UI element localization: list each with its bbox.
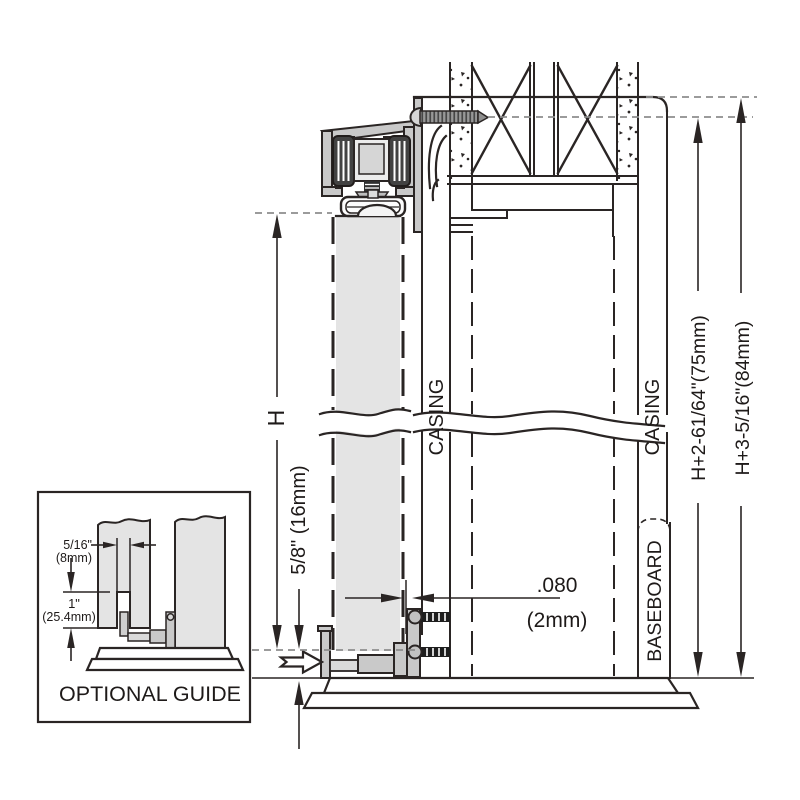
floor-plate-lower bbox=[304, 693, 698, 708]
guide-rod bbox=[330, 660, 358, 671]
plaster-stipple-right bbox=[618, 63, 637, 179]
dim-door-height: H bbox=[263, 214, 289, 649]
guide-adjuster-block bbox=[358, 655, 394, 673]
door-section-diagram: H 5/8" (16mm) H+2-61/64"(75mm) H+3-5/16"… bbox=[0, 0, 800, 800]
guide-screw-upper bbox=[409, 611, 451, 624]
overall-height-label: H+3-5/16"(84mm) bbox=[732, 321, 754, 476]
inset-title: OPTIONAL GUIDE bbox=[59, 682, 241, 706]
door-height-label: H bbox=[263, 410, 289, 427]
inset-floor-plate-upper bbox=[96, 648, 233, 659]
technical-drawing: H 5/8" (16mm) H+2-61/64"(75mm) H+3-5/16"… bbox=[0, 0, 800, 800]
track-left-wall bbox=[322, 131, 332, 193]
floor-plate-upper bbox=[324, 678, 678, 693]
roller-left bbox=[333, 136, 354, 186]
gap-inches-label: .080 bbox=[537, 574, 578, 597]
baseboard-label: BASEBOARD bbox=[644, 540, 666, 661]
groove-depth-in-label: 1" bbox=[68, 596, 80, 611]
groove-depth-mm-label: (25.4mm) bbox=[42, 610, 95, 624]
guide-screw-lower bbox=[409, 646, 451, 659]
dim-track-height: H+2-61/64"(75mm) bbox=[688, 118, 710, 677]
guide-pointer-arrow bbox=[281, 652, 322, 673]
dim-overall-height: H+3-5/16"(84mm) bbox=[732, 98, 754, 677]
casing-left-label: CASING bbox=[426, 379, 448, 456]
track-height-label: H+2-61/64"(75mm) bbox=[688, 315, 710, 481]
inset-door-plain bbox=[175, 516, 225, 648]
gap-mm-label: (2mm) bbox=[527, 609, 588, 632]
inset-floor-plate-lower bbox=[87, 659, 243, 670]
groove-width-mm-label: (8mm) bbox=[56, 551, 92, 565]
casing-right-label: CASING bbox=[642, 379, 664, 456]
inset-guide-pin bbox=[120, 612, 128, 636]
screw-shaft bbox=[420, 111, 478, 123]
roller-right bbox=[389, 136, 410, 186]
wood-grain-arcs bbox=[429, 126, 446, 200]
door-panel-lower bbox=[336, 428, 400, 651]
bottom-clearance-label: 5/8" (16mm) bbox=[288, 465, 310, 574]
track-assembly bbox=[322, 98, 422, 232]
groove-width-in-label: 5/16" bbox=[63, 538, 92, 552]
mounting-screw-top bbox=[410, 108, 488, 126]
floor bbox=[252, 678, 754, 708]
door-panel-upper bbox=[336, 216, 400, 420]
baseboard-top-corner bbox=[638, 519, 670, 532]
guide-post bbox=[321, 631, 330, 678]
screw-tip bbox=[478, 111, 488, 123]
hanger-carriage bbox=[354, 139, 389, 198]
inset-optional-guide: 5/16" (8mm) 1" (25.4mm) OPTIONAL GUIDE bbox=[38, 492, 250, 722]
wall-framing bbox=[414, 63, 667, 236]
stud-cross-brace-right bbox=[558, 66, 617, 173]
